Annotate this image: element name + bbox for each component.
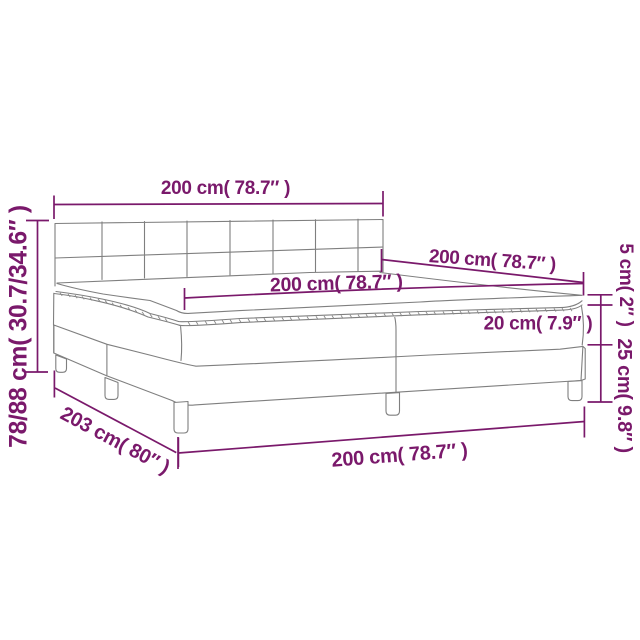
svg-text:200 cm( 78.7″ ): 200 cm( 78.7″ ) (331, 439, 469, 471)
svg-text:5 cm( 2″ ): 5 cm( 2″ ) (615, 243, 636, 326)
svg-text:200 cm( 78.7″ ): 200 cm( 78.7″ ) (428, 246, 556, 275)
svg-text:200 cm( 78.7″ ): 200 cm( 78.7″ ) (161, 178, 290, 199)
svg-text:200 cm( 78.7″ ): 200 cm( 78.7″ ) (270, 271, 403, 297)
svg-text:78/88 cm( 30.7/34.6″ ): 78/88 cm( 30.7/34.6″ ) (6, 205, 33, 448)
svg-text:25 cm( 9.8″ ): 25 cm( 9.8″ ) (613, 338, 635, 453)
svg-text:20 cm( 7.9″ ): 20 cm( 7.9″ ) (484, 314, 593, 335)
